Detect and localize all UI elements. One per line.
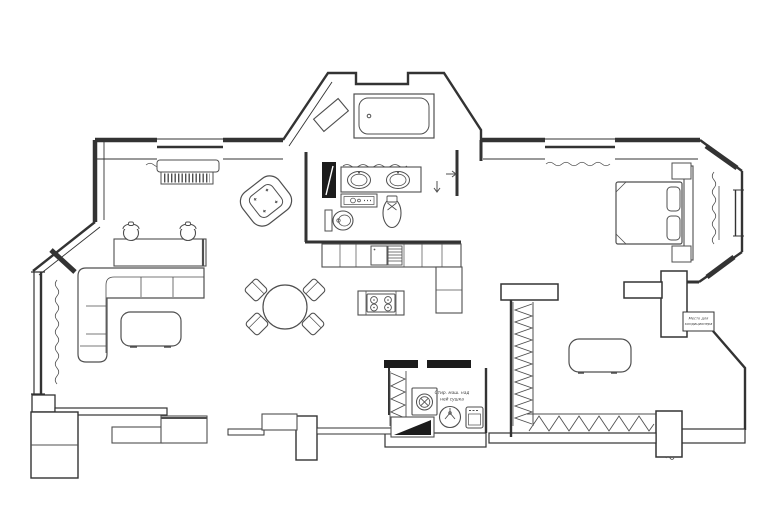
window-living-top bbox=[157, 135, 223, 147]
wardrobe-rail-left bbox=[513, 302, 533, 426]
dining-area bbox=[244, 278, 326, 336]
desk-chair-2 bbox=[180, 222, 196, 241]
nightstand-2 bbox=[672, 246, 691, 262]
washing-machine bbox=[412, 388, 437, 415]
entry-hall bbox=[31, 412, 434, 478]
desk-chair-1 bbox=[123, 222, 139, 241]
corner-shelf bbox=[314, 99, 349, 132]
pillow-1 bbox=[667, 187, 680, 211]
dressing-room: Место для кондиционера bbox=[513, 302, 714, 431]
desk bbox=[114, 239, 206, 266]
ac-niche: Место для кондиционера bbox=[683, 312, 714, 331]
window-living-left bbox=[31, 272, 45, 394]
pier bbox=[656, 411, 682, 457]
entry-closet bbox=[31, 412, 78, 478]
entry-door bbox=[391, 417, 434, 437]
nightstand-1 bbox=[672, 163, 691, 179]
cosmetics-shelf bbox=[341, 194, 377, 207]
plumbing-arrows bbox=[434, 171, 456, 192]
toilet bbox=[325, 210, 353, 231]
console bbox=[161, 416, 207, 443]
ac-note-line1: Место для bbox=[689, 317, 710, 321]
kitchen bbox=[322, 244, 462, 315]
bathroom bbox=[314, 94, 456, 231]
laundry-note-line2: ней сушка bbox=[440, 397, 464, 403]
hob-4-burners bbox=[367, 294, 395, 312]
bay-window-living-corner bbox=[51, 250, 75, 272]
bidet bbox=[383, 196, 401, 228]
dining-table bbox=[263, 285, 307, 329]
bathtub bbox=[354, 94, 434, 138]
laundry-note-line1: Стир. маш. над bbox=[435, 390, 470, 396]
window-sill-shelf bbox=[157, 160, 219, 172]
bathroom-door-leaf bbox=[322, 162, 336, 198]
curtain-wave-bedroom-right bbox=[712, 172, 716, 244]
curtain-wave-bedroom-top bbox=[546, 162, 610, 166]
wardrobe-rail-bottom bbox=[527, 414, 656, 431]
ottoman bbox=[569, 339, 631, 373]
floor-plan-canvas: Место для кондиционера Стир. маш. над не… bbox=[0, 0, 770, 510]
kitchen-island bbox=[358, 291, 404, 315]
window-bedroom-right bbox=[719, 186, 744, 240]
water-heater bbox=[466, 407, 483, 428]
bedroom bbox=[616, 163, 693, 262]
dishwasher bbox=[388, 246, 402, 265]
hall-cabinet bbox=[262, 414, 297, 430]
window-bedroom-top bbox=[545, 135, 615, 147]
pillow-2 bbox=[667, 216, 680, 240]
bay-window-bedroom-bottom bbox=[707, 257, 734, 277]
laundry-sink bbox=[440, 407, 461, 428]
curtain-wave-living-left bbox=[55, 280, 59, 384]
armchair bbox=[236, 171, 297, 231]
refrigerator bbox=[371, 246, 387, 265]
shoe-cabinet bbox=[112, 427, 163, 443]
living-room bbox=[78, 160, 296, 362]
bay-window-bedroom-top bbox=[706, 146, 737, 168]
ac-note-line2: кондиционера bbox=[685, 322, 713, 326]
coffee-table bbox=[121, 312, 181, 347]
hall-column bbox=[296, 416, 317, 460]
double-sink-vanity bbox=[341, 167, 421, 192]
radiator bbox=[161, 172, 213, 184]
